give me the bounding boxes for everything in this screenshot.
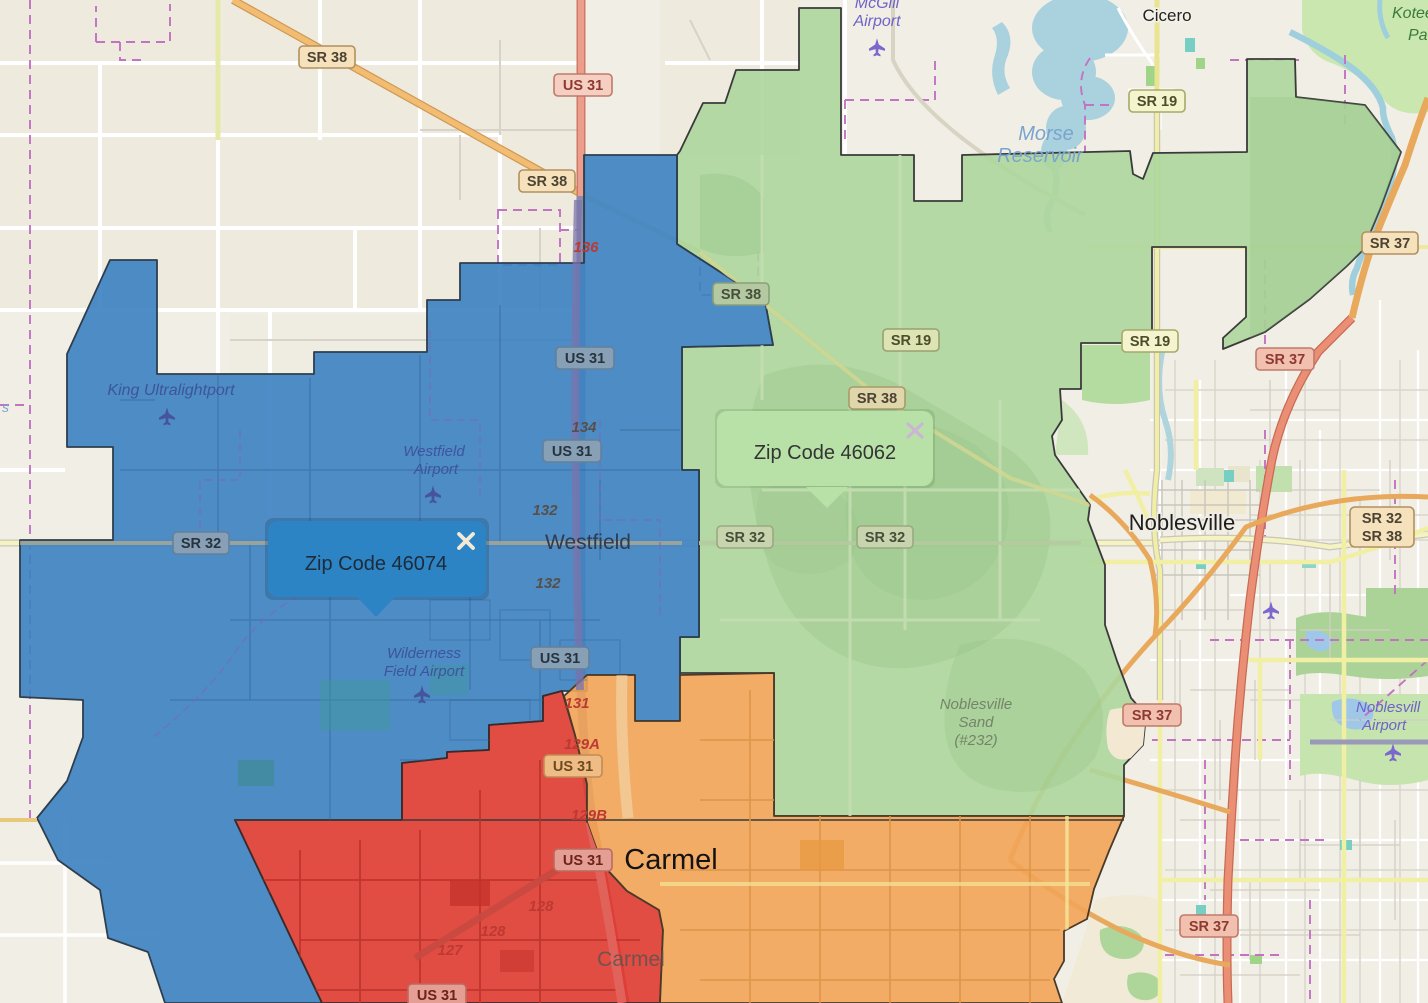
svg-text:McGill: McGill xyxy=(855,0,900,12)
svg-text:SR 38: SR 38 xyxy=(1362,529,1402,545)
svg-text:SR 38: SR 38 xyxy=(721,287,761,303)
svg-text:Zip Code 46062: Zip Code 46062 xyxy=(754,442,896,464)
svg-text:Field Airport: Field Airport xyxy=(384,663,465,680)
svg-text:US 31: US 31 xyxy=(553,759,593,775)
svg-text:SR 32: SR 32 xyxy=(725,530,765,546)
svg-text:(#232): (#232) xyxy=(954,732,997,749)
svg-text:US 31: US 31 xyxy=(552,444,592,460)
svg-text:Morse: Morse xyxy=(1018,123,1074,145)
svg-text:131: 131 xyxy=(564,695,589,712)
svg-text:SR 32: SR 32 xyxy=(181,536,221,552)
svg-text:Sand: Sand xyxy=(958,714,994,731)
svg-text:129A: 129A xyxy=(564,736,600,753)
svg-text:US 31: US 31 xyxy=(563,853,603,869)
svg-text:Park: Park xyxy=(1408,27,1428,44)
svg-text:Cicero: Cicero xyxy=(1142,6,1191,25)
svg-text:Noblesvill: Noblesvill xyxy=(1356,699,1421,716)
svg-text:Westfield: Westfield xyxy=(403,443,465,460)
svg-text:SR 37: SR 37 xyxy=(1265,352,1305,368)
svg-text:Zip Code 46074: Zip Code 46074 xyxy=(305,553,447,575)
svg-text:Airport: Airport xyxy=(1361,717,1407,734)
svg-text:132: 132 xyxy=(532,502,558,519)
svg-text:Koteewi: Koteewi xyxy=(1392,5,1428,22)
svg-text:SR 37: SR 37 xyxy=(1370,236,1410,252)
svg-text:Carmel: Carmel xyxy=(624,844,717,876)
svg-text:Noblesville: Noblesville xyxy=(1129,510,1235,535)
svg-text:King Ultralightport: King Ultralightport xyxy=(107,382,235,399)
svg-text:Noblesville: Noblesville xyxy=(940,696,1013,713)
svg-text:134: 134 xyxy=(571,419,597,436)
svg-text:SR 38: SR 38 xyxy=(857,391,897,407)
svg-text:128: 128 xyxy=(480,923,506,940)
svg-text:US 31: US 31 xyxy=(540,651,580,667)
svg-text:SR 32: SR 32 xyxy=(1362,511,1402,527)
svg-text:s: s xyxy=(2,399,9,415)
svg-text:US 31: US 31 xyxy=(565,351,605,367)
svg-text:132: 132 xyxy=(535,575,561,592)
svg-text:US 31: US 31 xyxy=(563,78,603,94)
svg-text:Airport: Airport xyxy=(413,461,459,478)
svg-text:Carmel: Carmel xyxy=(597,948,665,971)
svg-text:Westfield: Westfield xyxy=(545,531,631,554)
svg-text:SR 37: SR 37 xyxy=(1189,919,1229,935)
svg-text:SR 32: SR 32 xyxy=(865,530,905,546)
svg-text:SR 38: SR 38 xyxy=(527,174,567,190)
svg-text:SR 38: SR 38 xyxy=(307,50,347,66)
svg-text:Wilderness: Wilderness xyxy=(387,645,462,662)
svg-text:SR 19: SR 19 xyxy=(891,333,931,349)
svg-text:SR 19: SR 19 xyxy=(1137,94,1177,110)
svg-text:127: 127 xyxy=(437,942,463,959)
svg-text:Reservoir: Reservoir xyxy=(997,145,1084,167)
svg-text:US 31: US 31 xyxy=(417,988,457,1003)
svg-text:129B: 129B xyxy=(571,807,607,824)
svg-text:SR 19: SR 19 xyxy=(1130,334,1170,350)
svg-text:128: 128 xyxy=(528,898,554,915)
svg-text:Airport: Airport xyxy=(852,13,901,30)
svg-text:SR 37: SR 37 xyxy=(1132,708,1172,724)
svg-text:136: 136 xyxy=(573,239,599,256)
